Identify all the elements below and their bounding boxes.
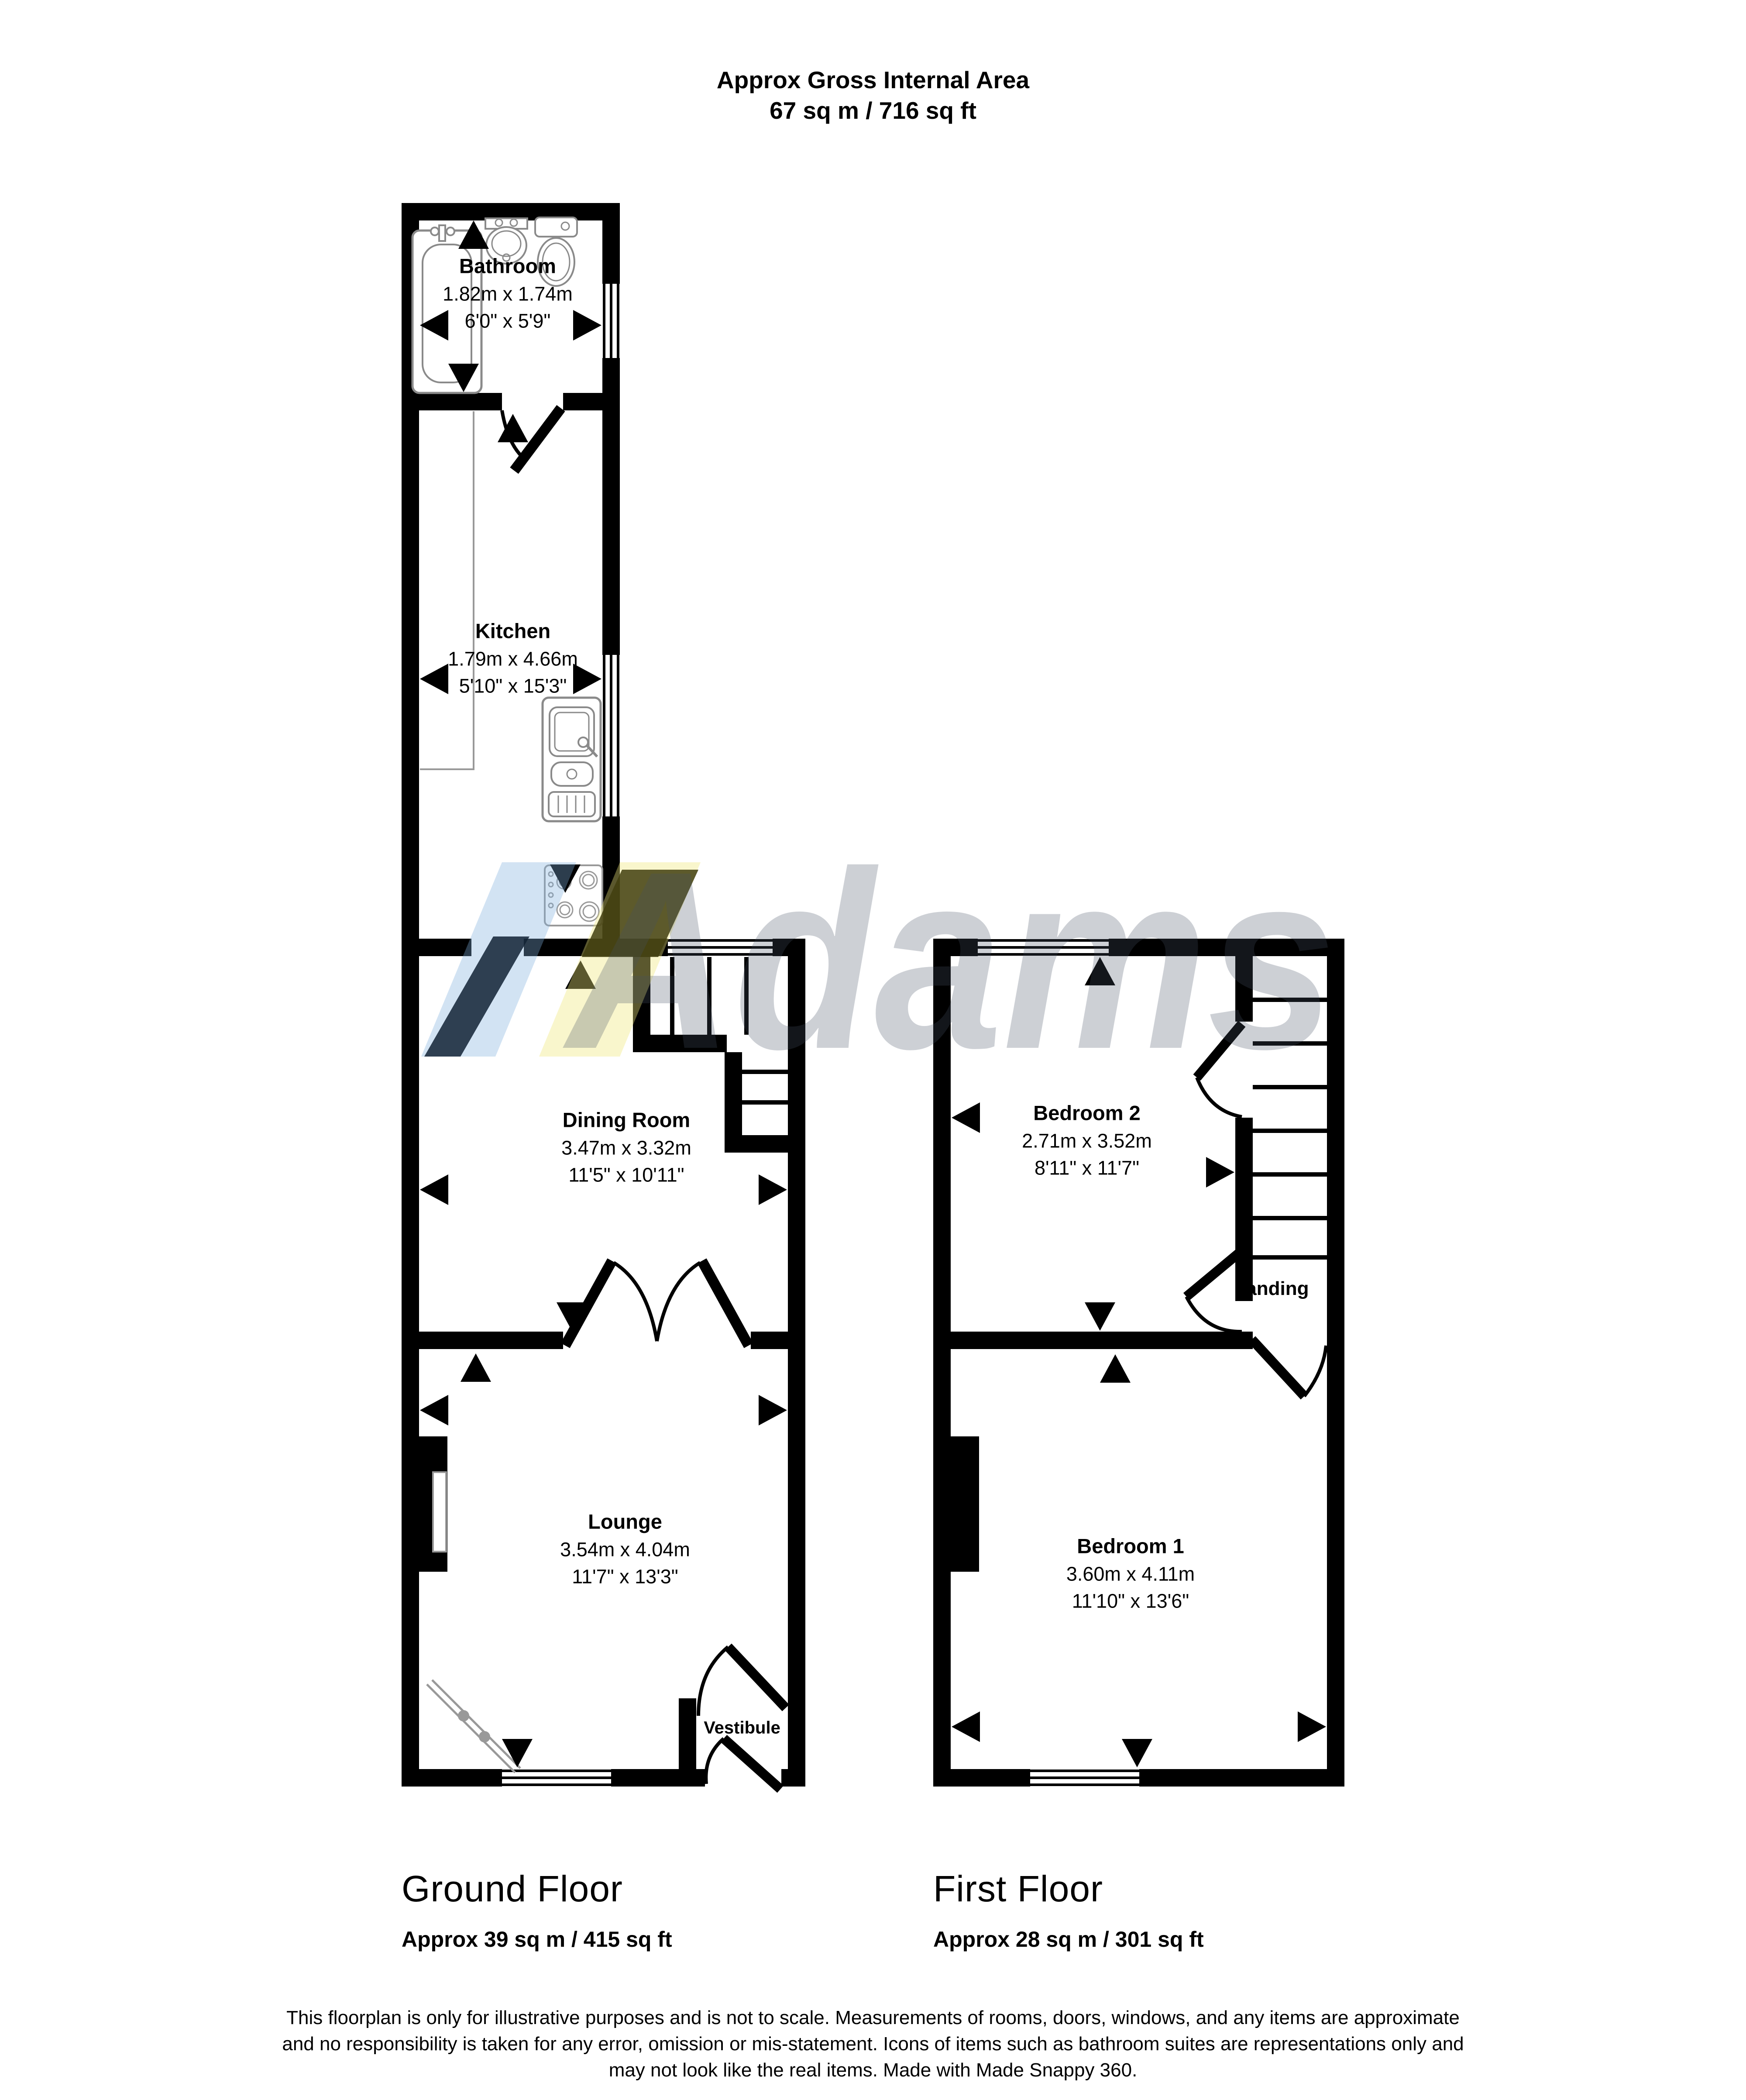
room-label-dining-room: Dining Room 3.47m x 3.32m 11'5" x 10'11" [561, 1106, 691, 1188]
room-label-bathroom: Bathroom 1.82m x 1.74m 6'0" x 5'9" [443, 252, 573, 334]
bedroom1-door [1252, 1339, 1326, 1396]
disclaimer-line1: This floorplan is only for illustrative … [0, 2005, 1746, 2031]
room-label-lounge: Lounge 3.54m x 4.04m 11'7" x 13'3" [560, 1508, 690, 1590]
kitchen-counter [420, 411, 474, 769]
lounge-window [502, 1768, 611, 1787]
radiator-icon [427, 1680, 520, 1773]
room-label-bedroom1: Bedroom 1 3.60m x 4.11m 11'10" x 13'6" [1066, 1532, 1195, 1615]
disclaimer-line3: may not look like the real items. Made w… [0, 2057, 1746, 2083]
disclaimer-line2: and no responsibility is taken for any e… [0, 2031, 1746, 2057]
bedroom1-window [1030, 1768, 1139, 1787]
room-label-kitchen: Kitchen 1.79m x 4.66m 5'10" x 15'3" [448, 617, 578, 699]
first-floor-label: First Floor Approx 28 sq m / 301 sq ft [933, 1868, 1204, 1952]
kitchen-window [601, 655, 621, 816]
double-doors [565, 1261, 749, 1346]
room-label-bedroom2: Bedroom 2 2.71m x 3.52m 8'11" x 11'7" [1022, 1099, 1152, 1181]
watermark-text: Adams [560, 819, 1336, 1102]
kitchen-sink-icon [543, 698, 601, 821]
disclaimer: This floorplan is only for illustrative … [0, 2005, 1746, 2083]
bedroom1-chimney-breast [951, 1436, 979, 1572]
room-label-landing: Landing [1234, 1278, 1309, 1300]
room-label-vestibule: Vestibule [704, 1718, 780, 1738]
watermark: Adams [421, 819, 1336, 1102]
bathroom-window [601, 284, 621, 358]
fireplace [433, 1472, 446, 1552]
floorplan-page: Approx Gross Internal Area 67 sq m / 716… [0, 0, 1746, 2100]
ground-floor-label: Ground Floor Approx 39 sq m / 415 sq ft [402, 1868, 672, 1952]
floorplan-svg: Adams [0, 0, 1746, 2100]
